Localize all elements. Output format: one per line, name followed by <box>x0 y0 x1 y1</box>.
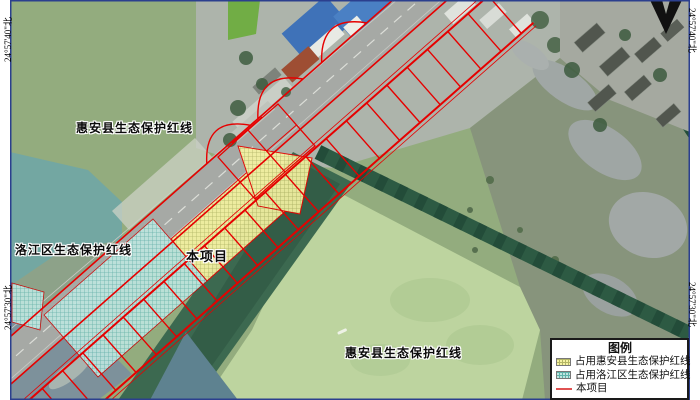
legend-item-huian: 占用惠安县生态保护红线 <box>556 355 684 369</box>
label-luojiang-redline: 洛江区生态保护红线 <box>15 241 132 258</box>
coord-top-right: 24°57'40"北 <box>686 8 699 53</box>
legend-item-luojiang: 占用洛江区生态保护红线 <box>556 369 684 383</box>
coord-bottom-right: 24°57'30"北 <box>686 282 699 327</box>
legend-item-label: 本项目 <box>576 382 608 396</box>
legend-item-label: 占用惠安县生态保护红线 <box>575 355 691 369</box>
red-line-swatch <box>556 388 572 390</box>
legend-item-project: 本项目 <box>556 382 684 396</box>
coord-bottom-left: 24°57'30"北 <box>1 285 14 330</box>
cyan-hatch-swatch <box>556 371 571 379</box>
yellow-hatch-swatch <box>556 358 571 366</box>
label-huian-redline-lower: 惠安县生态保护红线 <box>345 344 462 361</box>
legend-item-label: 占用洛江区生态保护红线 <box>575 369 691 383</box>
map-figure: 惠安县生态保护红线 洛江区生态保护红线 本项目 惠安县生态保护红线 24°57'… <box>0 0 700 400</box>
coord-top-left: 24°57'40"北 <box>1 17 14 62</box>
legend: 图例 占用惠安县生态保护红线 占用洛江区生态保护红线 本项目 <box>550 338 689 400</box>
legend-title: 图例 <box>556 341 684 355</box>
label-project: 本项目 <box>186 246 228 265</box>
label-huian-redline-upper: 惠安县生态保护红线 <box>76 119 193 136</box>
